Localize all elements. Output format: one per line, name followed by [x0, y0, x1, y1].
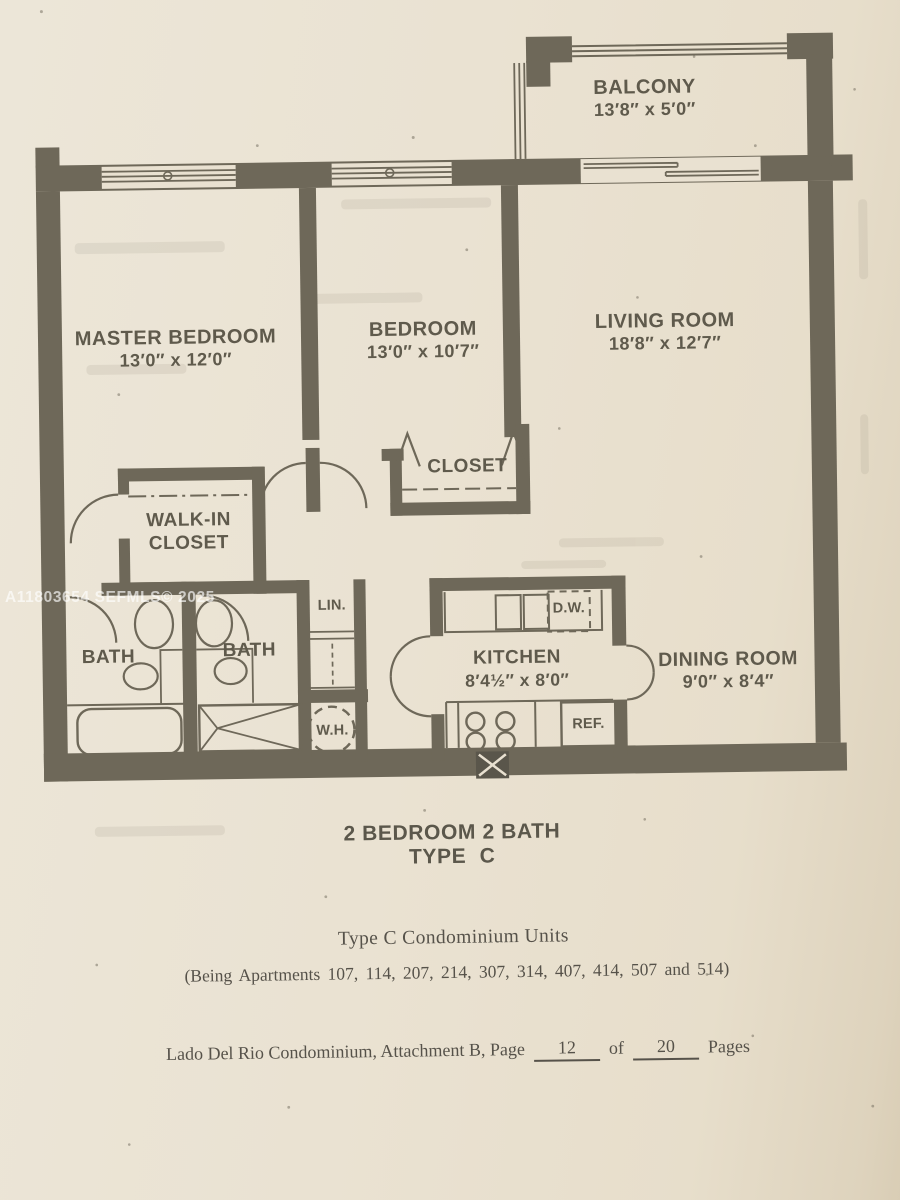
- living-room-name: LIVING ROOM: [570, 308, 760, 335]
- footer-total-pages: 20: [633, 1036, 699, 1061]
- footer-of: of: [609, 1038, 624, 1058]
- footer-prefix: Lado Del Rio Condominium, Attachment B, …: [166, 1039, 525, 1064]
- master-bedroom-name: MASTER BEDROOM: [53, 324, 298, 351]
- kitchen-name: KITCHEN: [434, 646, 599, 671]
- living-room-label: LIVING ROOM 18′8″ x 12′7″: [570, 308, 761, 356]
- bedroom-label: BEDROOM 13′0″ x 10′7″: [333, 316, 514, 364]
- entry-marker: [476, 751, 509, 778]
- kitchen-label: KITCHEN 8′4½″ x 8′0″: [434, 646, 600, 692]
- refrigerator-label: REF.: [563, 716, 613, 734]
- mls-watermark: A11803654 SEFMLS© 2025: [5, 589, 215, 607]
- balcony-name: BALCONY: [539, 74, 749, 101]
- balcony-label: BALCONY 13′8″ x 5′0″: [539, 74, 750, 123]
- plan-title: 2 BEDROOM 2 BATH TYPE C: [205, 818, 700, 873]
- footer-suffix: Pages: [708, 1036, 750, 1057]
- bedroom-name: BEDROOM: [333, 316, 513, 343]
- master-bedroom-dims: 13′0″ x 12′0″: [53, 348, 298, 373]
- bath1-label: BATH: [64, 646, 152, 670]
- closet-label: CLOSET: [420, 455, 515, 479]
- dining-room-dims: 9′0″ x 8′4″: [636, 670, 821, 694]
- linen-closet-label: LIN.: [307, 597, 357, 615]
- dining-room-name: DINING ROOM: [635, 647, 820, 673]
- kitchen-dims: 8′4½″ x 8′0″: [435, 669, 600, 692]
- bath2-label: BATH: [205, 639, 293, 663]
- walk-in-closet-line2: CLOSET: [119, 531, 259, 556]
- bedroom-dims: 13′0″ x 10′7″: [333, 340, 513, 364]
- walk-in-closet-label: WALK-IN CLOSET: [118, 509, 259, 557]
- walk-in-closet-line1: WALK-IN: [118, 509, 258, 534]
- balcony-dims: 13′8″ x 5′0″: [540, 98, 750, 123]
- scanned-floorplan-page: BALCONY 13′8″ x 5′0″ MASTER BEDROOM 13′0…: [0, 0, 900, 1200]
- dishwasher-label: D.W.: [546, 600, 592, 618]
- living-room-dims: 18′8″ x 12′7″: [570, 332, 760, 356]
- water-heater-label: W.H.: [308, 722, 356, 740]
- master-bedroom-label: MASTER BEDROOM 13′0″ x 12′0″: [53, 324, 299, 373]
- footer-page-number: 12: [534, 1037, 600, 1062]
- dining-room-label: DINING ROOM 9′0″ x 8′4″: [635, 647, 821, 695]
